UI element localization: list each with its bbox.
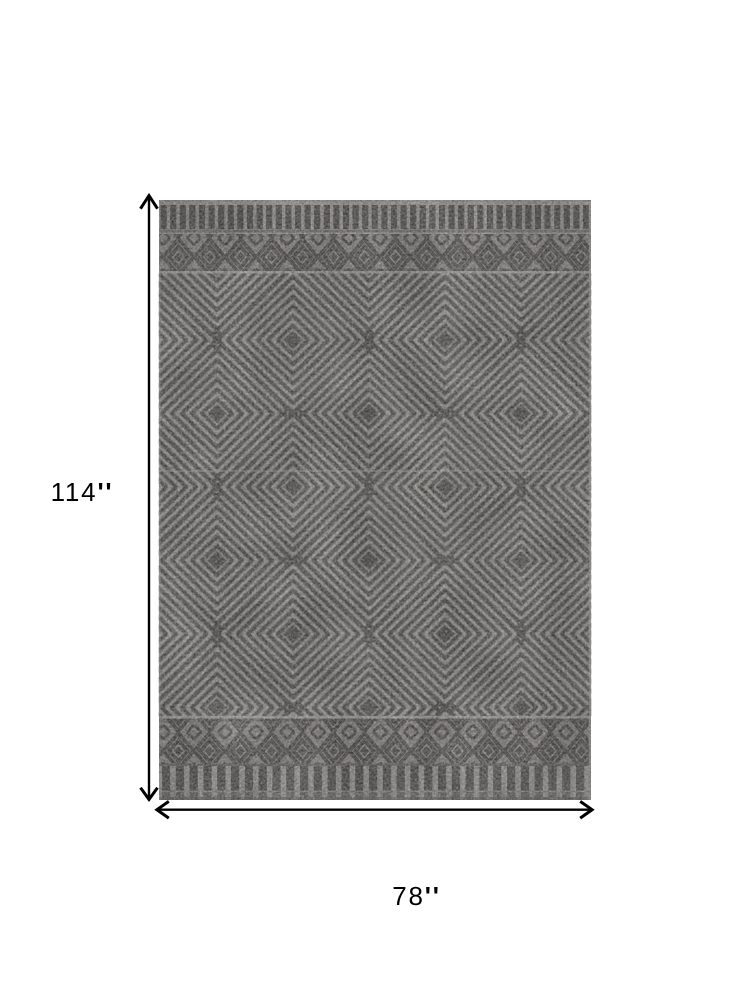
- svg-text:78'': 78'': [392, 881, 441, 911]
- svg-text:114'': 114'': [51, 477, 114, 507]
